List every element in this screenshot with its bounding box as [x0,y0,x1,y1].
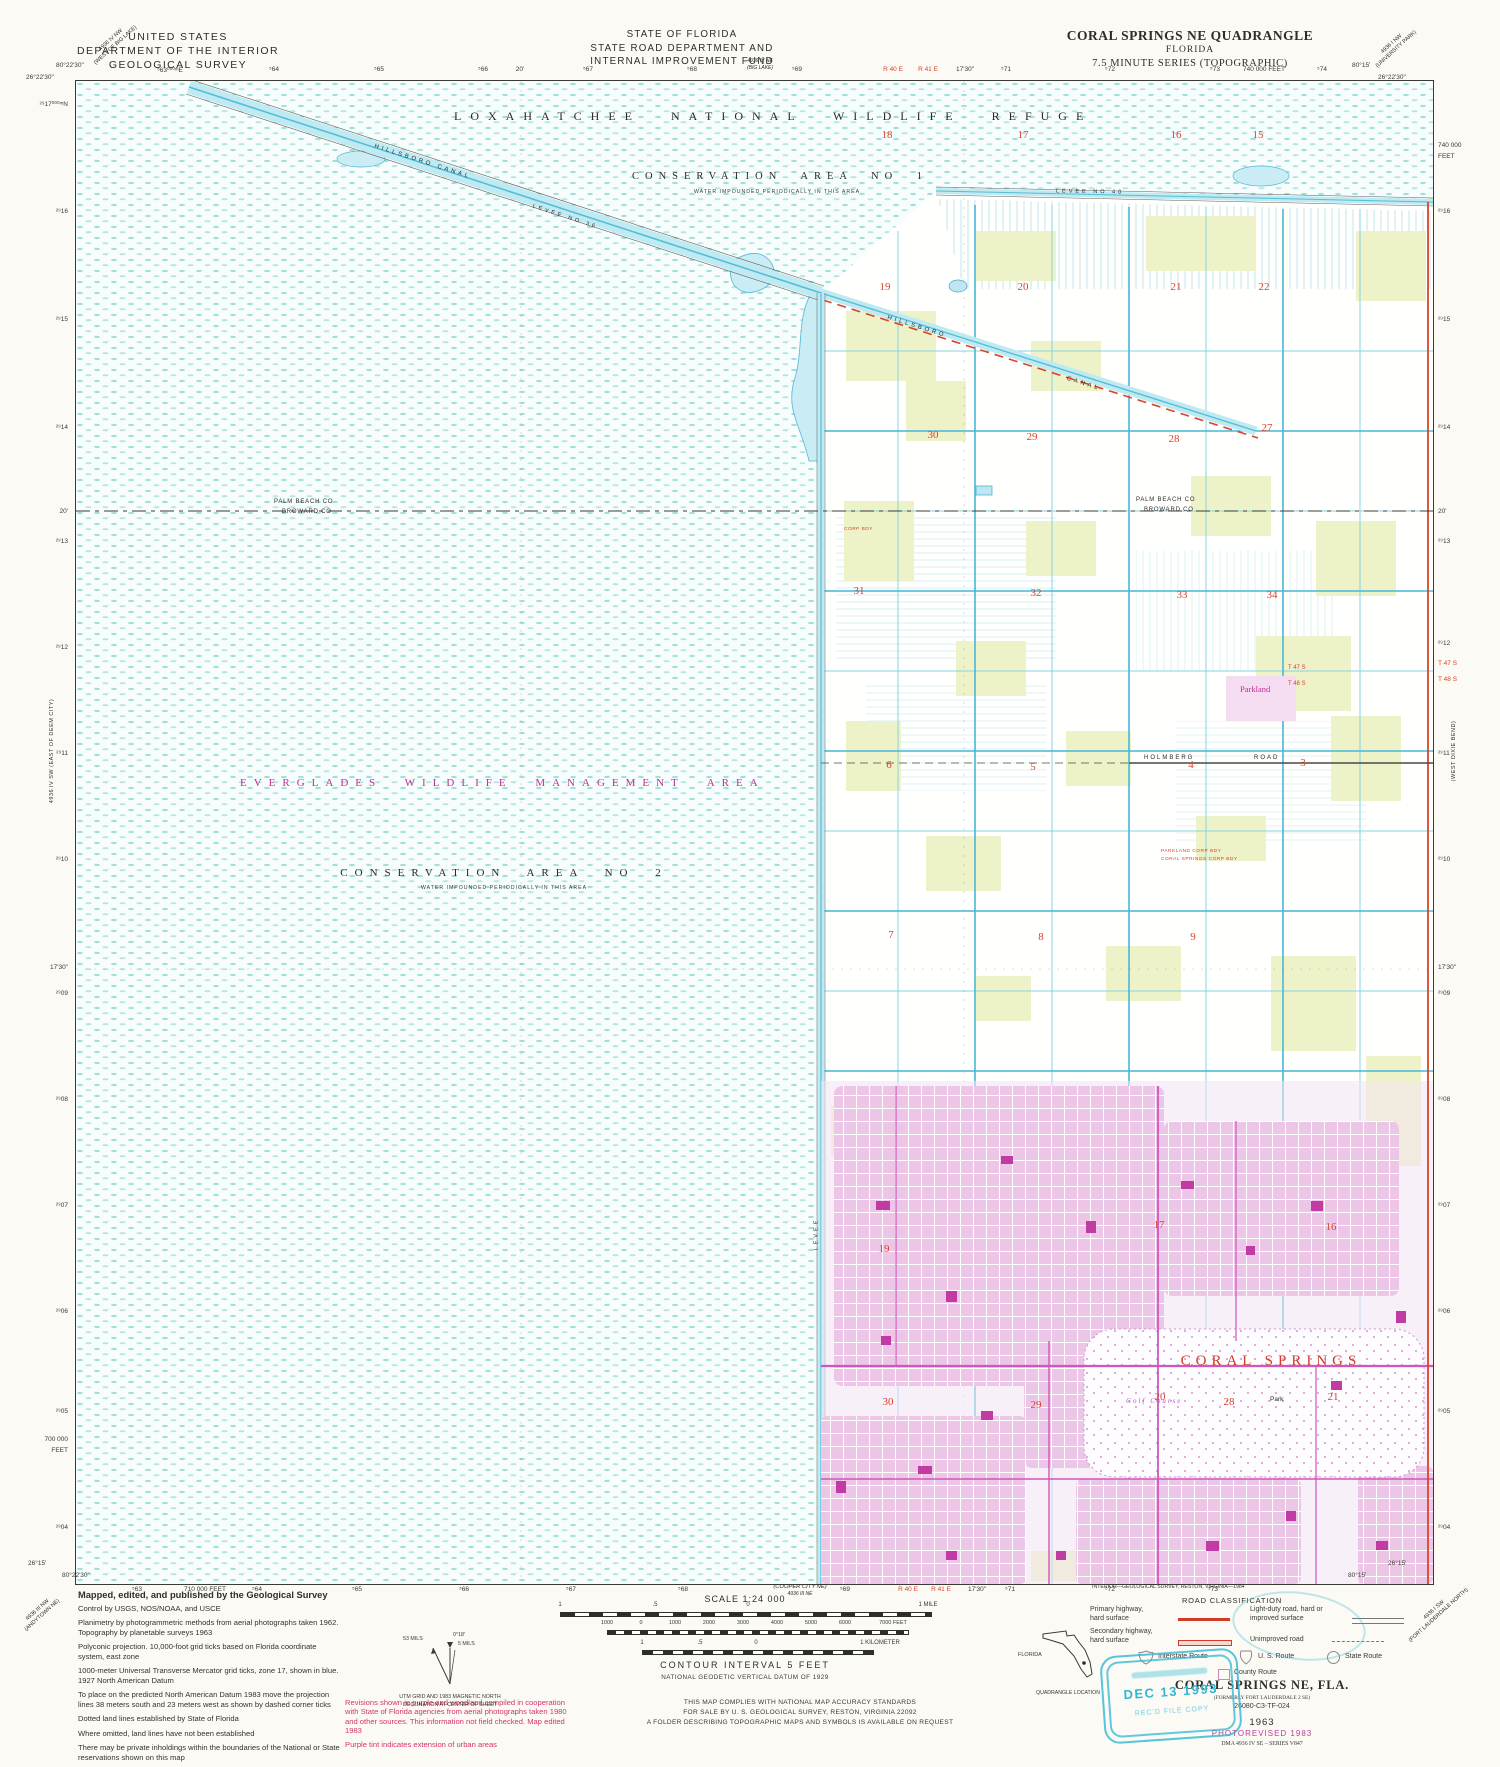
label-township-47: T 47 S [1288,665,1306,671]
label-holmberg: HOLMBERG [1144,755,1194,761]
grid-tick-top: ⁵73 [1210,66,1220,73]
grid-tick-top: 17'30" [956,66,974,73]
grid-tick-left: ²⁹08 [4,1096,68,1103]
legend-primary: Primary highway, hard surface [1090,1606,1143,1624]
grid-tick-top: R 41 E [918,66,938,73]
grid-tick-right: FEET [1438,153,1455,160]
declination-mils: 53 MILS [403,1636,423,1642]
grid-tick-top: R 40 E [883,66,903,73]
section-number: 34 [1267,589,1278,601]
label-township-48: T 48 S [1288,681,1306,687]
declination-caption-line: DECLINATION AT CENTER OF SHEET [370,1702,530,1710]
revision-line: Purple tint indicates extension of urban… [345,1740,567,1749]
grid-tick-left: FEET [4,1447,68,1454]
label-levee-40: LEVEE NO 40 [1056,188,1124,195]
section-number: 21 [1328,1391,1339,1403]
corner-coordinate: 80°22'30" [56,62,84,69]
grid-tick-bottom: ⁵71 [1005,1586,1015,1593]
label-holmberg-road: ROAD [1254,755,1279,761]
grid-tick-bottom: ⁵66 [459,1586,469,1593]
label-park: Park [1270,1396,1283,1403]
secondary-road-sample-icon [1178,1640,1232,1646]
grid-tick-right: ²⁹07 [1438,1202,1450,1209]
quad-location-dot [1082,1661,1086,1665]
grid-tick-right: ²⁹04 [1438,1524,1450,1531]
declination-diagram: 53 MILS 0°18' 5 MILS [395,1632,505,1692]
grid-tick-top: ⁵68 [687,66,697,73]
quadrangle-state: FLORIDA [1020,45,1360,57]
map-plate: LOXAHATCHEE NATIONAL WILDLIFE REFUGE CON… [75,80,1434,1585]
grid-tick-bottom: ⁵69 [840,1586,850,1593]
label-parkland: Parkland [1240,684,1270,694]
grid-tick-top: 20' [516,66,524,73]
florida-outline-icon [1042,1628,1096,1686]
grid-tick-bottom: ⁵64 [252,1586,262,1593]
scale-km-label: 1 [640,1640,643,1646]
label-conservation-area-2-sub: WATER IMPOUNDED PERIODICALLY IN THIS ARE… [334,885,674,891]
label-corp-bdy-parkland: PARKLAND CORP BDY [1161,849,1221,854]
label-corp-bdy: CORP BDY [844,527,873,532]
grid-tick-bottom: ⁵67 [566,1586,576,1593]
grid-tick-bottom: R 40 E [898,1586,918,1593]
grid-tick-top: 740 000 FEET [1243,66,1285,73]
grid-tick-right: ²⁹08 [1438,1096,1450,1103]
grid-tick-top: ⁵72 [1105,66,1115,73]
grid-tick-right: ²⁹11 [1438,750,1450,757]
accuracy-line: THIS MAP COMPLIES WITH NATIONAL MAP ACCU… [620,1698,980,1708]
label-county-broward-w: BROWARD CO [282,509,332,515]
quadrangle-name: CORAL SPRINGS NE QUADRANGLE [1020,28,1360,45]
grid-tick-right: ²⁹09 [1438,990,1450,997]
section-number: 28 [1224,1396,1235,1408]
grid-tick-bottom: ⁵68 [678,1586,688,1593]
grid-tick-bottom: R 41 E [931,1586,951,1593]
grid-tick-right: 740 000 [1438,142,1462,149]
grid-tick-right: ²⁹05 [1438,1408,1450,1415]
legend-label: hard surface [1090,1637,1153,1646]
grid-tick-left: ²⁹09 [4,990,68,997]
section-number: 29 [1031,1399,1042,1411]
section-number: 9 [1190,931,1196,943]
label-county-palm-beach-w: PALM BEACH CO [274,499,333,505]
grid-tick-right: 17'30" [1438,964,1456,971]
section-number: 33 [1177,589,1188,601]
credits-block: Control by USGS, NOS/NOAA, and USCEPlani… [78,1604,340,1767]
adjoining-quad-right-center: (WEST DIXIE BEND) [1451,686,1457,816]
date-received-stamp: DEC 13 1993 REC'D FILE COPY [1099,1647,1243,1744]
grid-tick-top: ⁵66 [478,66,488,73]
section-number: 17 [1018,129,1029,141]
legend-county-route: County Route [1234,1669,1277,1678]
grid-tick-left: ²⁹06 [4,1308,68,1315]
legend-state-route: State Route [1345,1653,1382,1662]
grid-tick-left: 17'30" [4,964,68,971]
grid-tick-top: ⁵74 [1317,66,1327,73]
scale-bar-miles [560,1612,932,1617]
vertical-datum: NATIONAL GEODETIC VERTICAL DATUM OF 1929 [661,1674,829,1681]
adjoining-quad-top-right: 4936 I NW (UNIVERSITY PARK) [1370,24,1419,70]
accuracy-line: FOR SALE BY U. S. GEOLOGICAL SURVEY, RES… [620,1708,980,1718]
section-number: 20 [1018,281,1029,293]
scale-mile-label: 1 MILE [918,1602,937,1608]
scale-km-label: 1 KILOMETER [860,1640,900,1646]
section-number: 21 [1171,281,1182,293]
section-number: 16 [1171,129,1182,141]
section-number: 6 [886,759,892,771]
grid-tick-right: ²⁹16 [1438,208,1450,215]
accuracy-line: A FOLDER DESCRIBING TOPOGRAPHIC MAPS AND… [620,1718,980,1728]
grid-tick-bottom: ⁵65 [352,1586,362,1593]
grid-tick-left: ²⁹05 [4,1408,68,1415]
grid-tick-bottom: 710 000 FEET [184,1586,226,1593]
publisher-line: UNITED STATES [58,30,298,44]
us-route-shield-icon [1238,1650,1254,1665]
dma-series: DMA 4936 IV SE – SERIES V847 [1221,1741,1302,1747]
grid-tick-left: 700 000 [4,1436,68,1443]
scale-mile-label: .5 [652,1602,657,1608]
credits-line: Dotted land lines established by State o… [78,1714,340,1723]
section-number: 8 [1038,931,1044,943]
grid-tick-bottom: 17'30" [968,1586,986,1593]
grid-tick-right: ²⁹12 [1438,640,1450,647]
label-county-palm-beach-e: PALM BEACH CO [1136,497,1195,503]
section-number: 32 [1031,587,1042,599]
label-wildlife-refuge: LOXAHATCHEE NATIONAL WILDLIFE REFUGE [454,109,1074,124]
grid-tick-left: ²⁹15 [4,316,68,323]
declination-caption: UTM GRID AND 1983 MAGNETIC NORTH DECLINA… [370,1694,530,1710]
grid-tick-left: ²⁹07 [4,1202,68,1209]
grid-tick-left: ²⁹04 [4,1524,68,1531]
section-number: 16 [1326,1221,1337,1233]
state-line: STATE OF FLORIDA [552,28,812,42]
grid-tick-left: ²⁹17⁰⁰⁰ᵐN [4,100,68,108]
declination-caption-line: UTM GRID AND 1983 MAGNETIC NORTH [370,1694,530,1702]
credits-line: There may be private inholdings within t… [78,1743,340,1762]
scale-feet-label: 1000 [601,1620,613,1626]
contour-interval: CONTOUR INTERVAL 5 FEET [660,1660,830,1670]
grid-tick-right: ²⁹14 [1438,424,1450,431]
section-number: 30 [928,429,939,441]
legend-label: Secondary highway, [1090,1628,1153,1637]
section-number: 19 [880,281,891,293]
section-number: 22 [1259,281,1270,293]
section-number: 29 [1027,431,1038,443]
primary-road-sample-icon [1178,1618,1230,1621]
section-number: 5 [1030,761,1036,773]
label-everglades-wma: EVERGLADES WILDLIFE MANAGEMENT AREA [240,777,680,789]
grid-tick-left: ²⁹10 [4,856,68,863]
credits-line: Control by USGS, NOS/NOAA, and USCE [78,1604,340,1613]
grid-tick-right: T 48 S [1438,676,1457,683]
legend-label: hard surface [1090,1615,1143,1624]
label-conservation-area-1: CONSERVATION AREA NO 1 [632,171,922,182]
section-number: 30 [883,1396,894,1408]
scale-feet-label: 1000 [669,1620,681,1626]
label-levee-west: LEVEE [813,1218,819,1251]
corner-coordinate: 80°15' [1352,62,1370,69]
sheet-year: 1963 [1249,1717,1274,1728]
corner-coordinate: 80°15' [1348,1572,1366,1579]
grid-tick-right: T 47 S [1438,660,1457,667]
scale-bar-feet [607,1630,909,1635]
declination-mils-gn: 5 MILS [458,1641,475,1647]
grid-tick-right: ²⁹06 [1438,1308,1450,1315]
corner-coordinate: 26°15' [1388,1560,1406,1567]
scale-feet-label: 3000 [737,1620,749,1626]
declination-degrees: 0°18' [453,1632,465,1638]
corner-coordinate: 26°22'30" [26,74,54,81]
scale-km-label: .5 [697,1640,702,1646]
grid-tick-bottom: ⁵63 [132,1586,142,1593]
accuracy-statement: THIS MAP COMPLIES WITH NATIONAL MAP ACCU… [620,1698,980,1729]
quadrangle-series: 7.5 MINUTE SERIES (TOPOGRAPHIC) [1020,57,1360,70]
scale-bar-km [642,1650,874,1655]
section-number: 27 [1262,422,1273,434]
section-number: 28 [1169,433,1180,445]
label-conservation-area-2: CONSERVATION AREA NO 2 [334,867,674,879]
quadrangle-location-caption: QUADRANGLE LOCATION [1036,1690,1100,1696]
adjoining-quad-bottom-right: 4936 I SW (FORT LAUDERDALE NORTH) [1403,1582,1470,1645]
quad-name: (FORT LAUDERDALE NORTH) [1408,1587,1470,1644]
grid-tick-left: 20' [4,508,68,515]
credits-line: Planimetry by photogrammetric methods fr… [78,1618,340,1637]
scale-feet-label: 5000 [805,1620,817,1626]
section-number: 20 [1155,1391,1166,1403]
corner-coordinate: 26°15' [28,1560,46,1567]
section-number: 4 [1188,759,1194,771]
grid-tick-left: ²⁹16 [4,208,68,215]
label-coral-springs: CORAL SPRINGS [1171,1353,1371,1370]
grid-tick-top: ⁵69 [792,66,802,73]
scale-feet-label: 0 [639,1620,642,1626]
florida-label: FLORIDA [1018,1652,1042,1658]
label-conservation-area-1-sub: WATER IMPOUNDED PERIODICALLY IN THIS ARE… [632,189,922,195]
grid-tick-top: ⁵71 [1001,66,1011,73]
section-number: 17 [1154,1219,1165,1231]
section-number: 7 [888,929,894,941]
adjoining-quad-bottom-left: 4936 III NW (ANDYTOWN NE) [19,1593,62,1634]
grid-tick-top: ⁵63⁰⁰⁰ᵐE [157,66,183,74]
scanned-topo-map-sheet: { "colors":{"map_red":"#d8432c","magenta… [0,0,1500,1752]
grid-tick-top: ⁵65 [374,66,384,73]
credits-line: Polyconic projection. 10,000-foot grid t… [78,1642,340,1661]
scale-title: SCALE 1:24 000 [704,1594,785,1604]
scale-feet-label: 2000 [703,1620,715,1626]
section-number: 31 [854,585,865,597]
grid-tick-right: ²⁹10 [1438,856,1450,863]
state-line: STATE ROAD DEPARTMENT AND [552,42,812,56]
scale-feet-label: 4000 [771,1620,783,1626]
grid-tick-top: ⁵67 [583,66,593,73]
quad-number: 4936 I SW [1403,1582,1465,1639]
quadrangle-title-block: CORAL SPRINGS NE QUADRANGLE FLORIDA 7.5 … [1020,28,1360,70]
grid-tick-right: 20' [1438,508,1446,515]
grid-tick-left: ²⁹12 [4,644,68,651]
grid-tick-bottom: ⁵73 [1208,1586,1218,1593]
legend-label: Primary highway, [1090,1606,1143,1615]
grid-tick-right: ²⁹15 [1438,316,1450,323]
scale-feet-label: 7000 FEET [879,1620,907,1626]
scale-mile-label: 1 [558,1602,561,1608]
grid-tick-left: ²⁹11 [4,750,68,757]
credits-line: Where omitted, land lines have not been … [78,1729,340,1738]
label-county-broward-e: BROWARD CO [1144,507,1194,513]
corner-coordinate: 80°22'30" [62,1572,90,1579]
section-number: 18 [882,129,893,141]
grid-tick-bottom: ⁵72 [1105,1586,1115,1593]
scale-mile-label: 0 [746,1602,749,1608]
scale-feet-label: 6000 [839,1620,851,1626]
section-number: 15 [1253,129,1264,141]
grid-tick-right: ²⁹13 [1438,538,1450,545]
label-corp-bdy-coral-springs: CORAL SPRINGS CORP BDY [1161,857,1238,862]
sheet-code: 26080-C3-TF-024 [1234,1703,1290,1710]
legend-secondary: Secondary highway, hard surface [1090,1628,1153,1646]
section-number: 3 [1300,757,1306,769]
grid-tick-left: ²⁹14 [4,424,68,431]
grid-tick-left: ²⁹13 [4,538,68,545]
section-number: 19 [879,1243,890,1255]
credits-line: To place on the predicted North American… [78,1690,340,1709]
credits-line: 1000-meter Universal Transverse Mercator… [78,1666,340,1685]
scale-km-label: 0 [754,1640,757,1646]
grid-tick-top: ⁵64 [269,66,279,73]
